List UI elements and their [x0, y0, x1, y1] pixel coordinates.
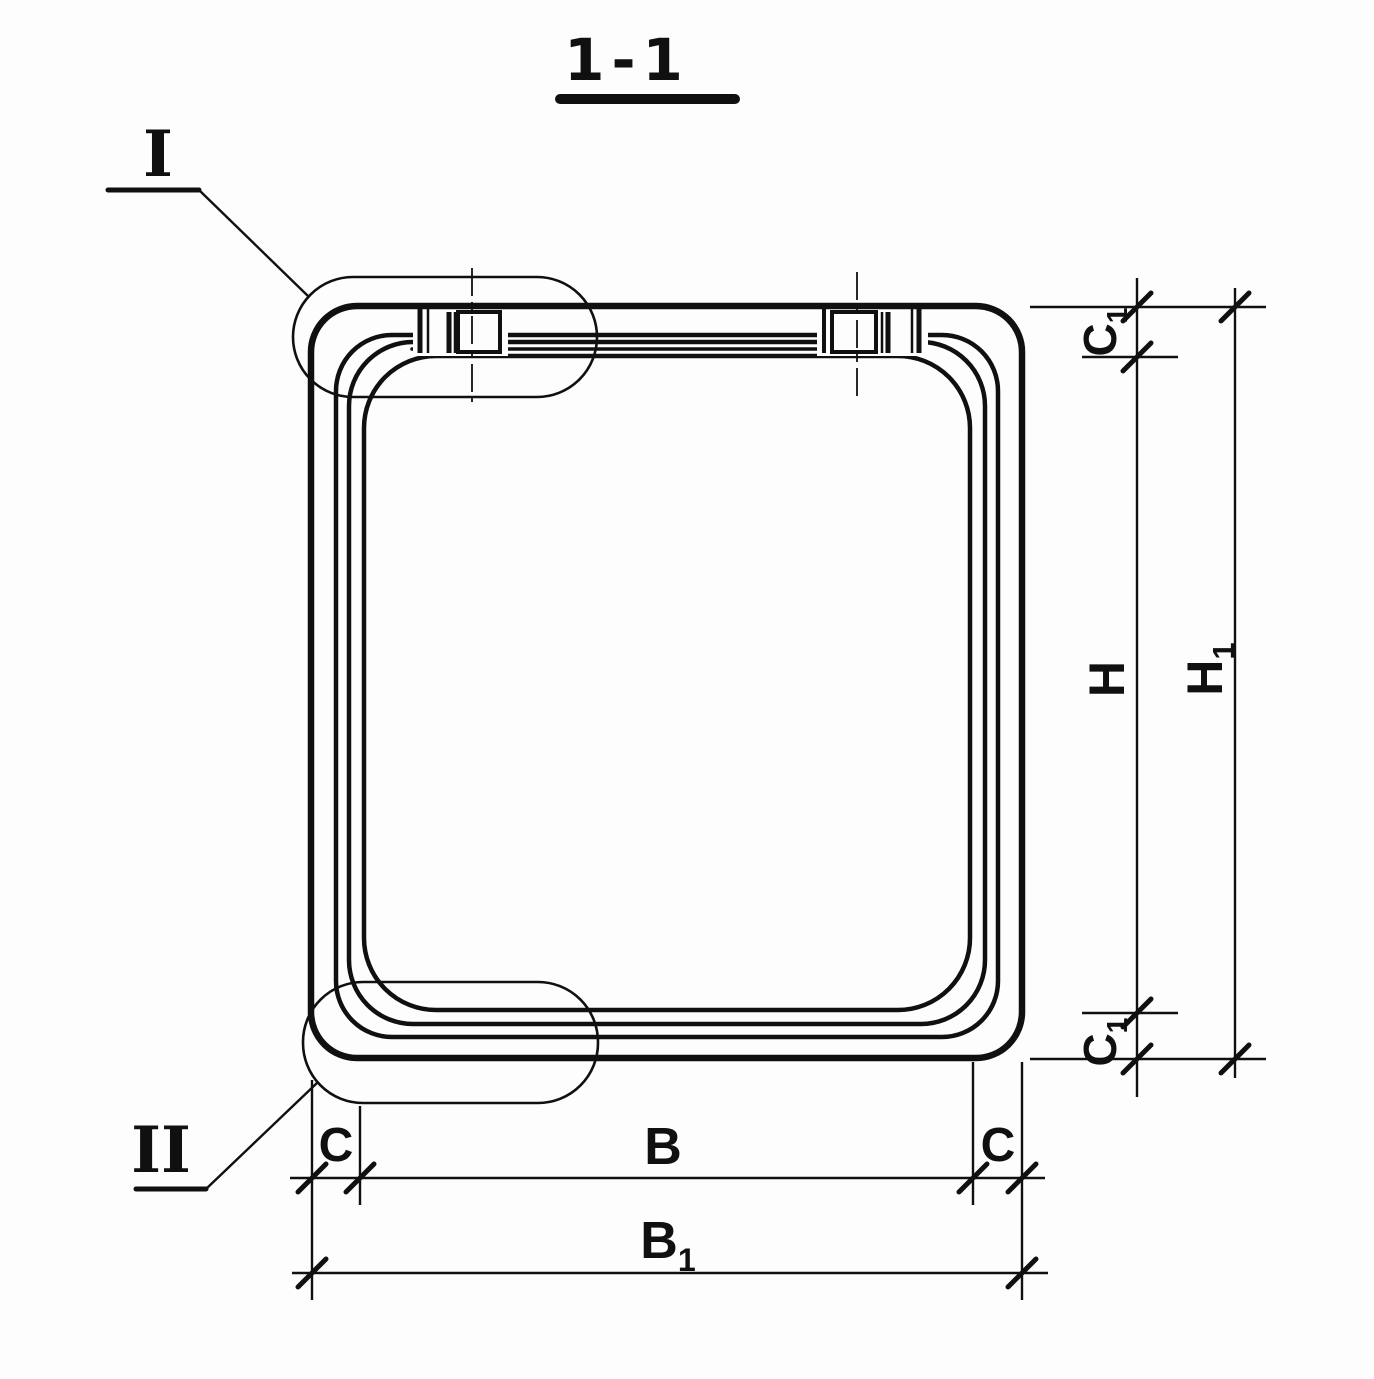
technical-drawing-svg: 1-1: [0, 0, 1374, 1379]
dim-label-c-right-base: C: [981, 1119, 1016, 1172]
dim-label-b-base: B: [644, 1118, 682, 1176]
detail-label-1: I: [143, 117, 173, 192]
dim-label-c1-top-sub: 1: [1102, 307, 1134, 323]
frame-outer-contour: [311, 306, 1022, 1058]
frame-section: [311, 306, 1022, 1058]
dim-label-c1-top: C1: [1074, 307, 1134, 356]
dim-label-h1-sub: 1: [1206, 642, 1241, 659]
dim-label-b: B: [644, 1118, 682, 1176]
dim-label-b1-sub: 1: [678, 1242, 696, 1278]
section-drawing-sheet: 1-1: [0, 0, 1374, 1379]
dim-label-c1-top-base: C: [1074, 323, 1126, 356]
dim-label-c-right: C: [981, 1119, 1016, 1172]
dim-label-h1-base: H: [1177, 660, 1233, 696]
dim-label-h1: H1: [1177, 642, 1241, 695]
detail-label-2: II: [131, 1113, 191, 1188]
dim-label-h-base: H: [1079, 661, 1135, 697]
dim-label-b1-base: B: [640, 1212, 678, 1270]
detail-leader-1: [199, 190, 309, 297]
dim-label-b1: B1: [640, 1212, 696, 1278]
drawing-title: 1-1: [560, 26, 735, 99]
detail-circle-2: [303, 982, 598, 1103]
detail-label-2-group: II: [131, 1083, 317, 1189]
dim-label-h: H: [1079, 661, 1135, 697]
frame-inner-contour-2: [349, 342, 985, 1024]
frame-inner-contour-3: [364, 356, 970, 1010]
dim-label-c-left-base: C: [319, 1119, 354, 1172]
frame-inner-contour-1: [336, 335, 998, 1037]
dim-label-c1-bottom-sub: 1: [1102, 1017, 1134, 1033]
joint-right: [817, 272, 928, 398]
detail-label-1-group: I: [108, 117, 309, 297]
dim-label-c1-bottom-base: C: [1074, 1033, 1126, 1066]
dim-label-c-left: C: [319, 1119, 354, 1172]
joint-left: [413, 268, 508, 402]
detail-leader-2: [206, 1083, 317, 1189]
section-title-text: 1-1: [564, 26, 690, 94]
detail-callouts: [293, 277, 598, 1103]
dim-label-c1-bottom: C1: [1074, 1017, 1134, 1066]
